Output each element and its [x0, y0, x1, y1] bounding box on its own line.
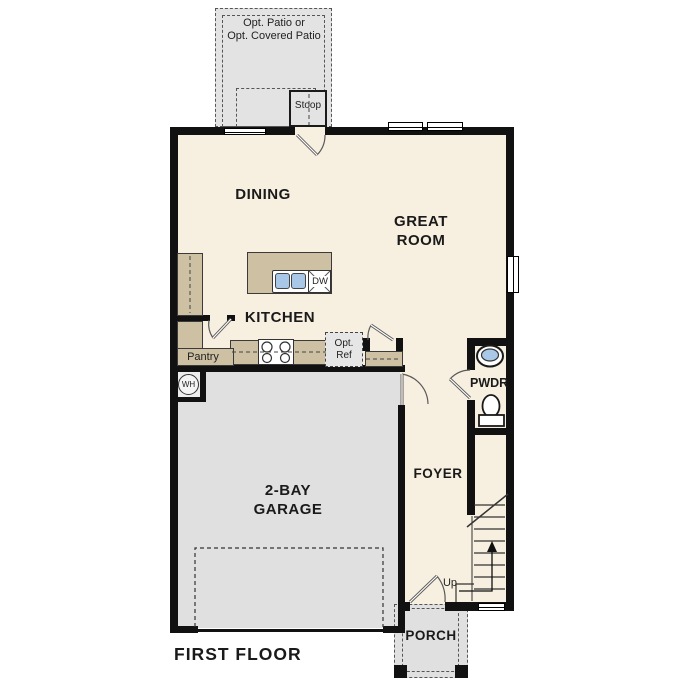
kitchen-label: KITCHEN	[243, 309, 317, 326]
wall-closet-post-left	[363, 338, 370, 351]
foyer-label: FOYER	[413, 466, 463, 481]
stoop-door-gap	[295, 127, 325, 135]
window-right-wall	[507, 256, 519, 293]
optional-fridge-label-line1: Opt.	[335, 338, 354, 349]
wall-pantry-post	[227, 315, 235, 321]
cabinet-left	[177, 253, 203, 316]
wall-garage-right	[398, 405, 405, 628]
island-sink	[272, 270, 310, 293]
porch-label: PORCH	[401, 628, 461, 643]
porch-post-right	[455, 665, 468, 678]
wall-right	[506, 127, 514, 611]
pantry-label: Pantry	[182, 351, 224, 363]
floor-title: FIRST FLOOR	[174, 644, 394, 665]
patio-label-line2: Opt. Covered Patio	[227, 30, 321, 42]
cooktop	[258, 339, 294, 365]
great-room-label-line1: GREAT	[394, 213, 448, 230]
porch-post-left	[394, 665, 407, 678]
window-dining	[224, 128, 266, 135]
sink-basin-right	[291, 273, 306, 289]
wall-foyer-bottom-left	[400, 602, 410, 611]
wall-pwdr-left-upper	[467, 338, 475, 370]
window-stairs-bottom	[478, 603, 505, 611]
water-heater-icon: WH	[178, 374, 199, 395]
window-greatroom-1	[388, 122, 423, 131]
powder-label: PWDR	[470, 376, 506, 390]
garage-label: 2-BAY GARAGE	[248, 481, 328, 519]
great-room-label: GREAT ROOM	[385, 212, 457, 250]
closet-bench	[365, 351, 403, 367]
wall-garage-bottom-left-post	[170, 626, 198, 633]
sink-basin-left	[275, 273, 290, 289]
garage-label-line2: GARAGE	[254, 501, 323, 518]
optional-fridge-label-line2: Ref	[336, 350, 352, 361]
patio-label-line1: Opt. Patio or	[243, 17, 305, 29]
wall-left	[170, 127, 178, 633]
floor-plan: Opt. Patio or Opt. Covered Patio Stoop W…	[0, 0, 687, 687]
garage-door-header	[197, 629, 384, 632]
optional-fridge-label: Opt. Ref	[325, 338, 363, 361]
great-room-label-line2: ROOM	[397, 232, 446, 249]
wall-closet-post-right	[396, 338, 403, 351]
window-greatroom-2	[427, 122, 463, 131]
wall-pwdr-left-lower-stairs	[467, 400, 475, 515]
up-label: Up	[441, 577, 459, 589]
water-heater-label: WH	[182, 380, 195, 389]
garage-label-line1: 2-BAY	[265, 482, 311, 499]
dishwasher-label: DW	[311, 276, 329, 287]
dining-label: DINING	[232, 186, 294, 203]
stoop-label: Stoop	[289, 100, 327, 111]
wall-pwdr-bottom	[467, 428, 508, 435]
patio-label: Opt. Patio or Opt. Covered Patio	[218, 17, 330, 43]
wall-wh-bottom	[170, 397, 206, 402]
